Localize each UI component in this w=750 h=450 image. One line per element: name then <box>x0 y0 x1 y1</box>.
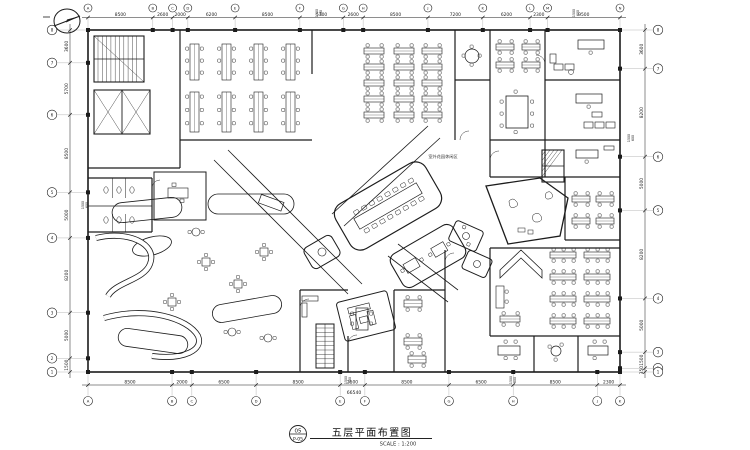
svg-text:1: 1 <box>657 370 660 375</box>
svg-text:室外花园休闲区: 室外花园休闲区 <box>428 153 457 160</box>
structural-columns <box>86 28 622 374</box>
svg-text:3600: 3600 <box>64 41 70 52</box>
svg-text:H: H <box>512 399 515 404</box>
svg-text:G: G <box>447 399 450 404</box>
svg-text:M: M <box>546 6 549 11</box>
svg-text:7: 7 <box>657 66 660 71</box>
svg-text:8500: 8500 <box>64 148 70 159</box>
svg-text:600: 600 <box>513 377 517 383</box>
svg-text:B: B <box>171 399 174 404</box>
svg-text:2000: 2000 <box>175 12 186 18</box>
svg-text:5000: 5000 <box>639 178 645 189</box>
svg-text:A: A <box>87 6 90 11</box>
svg-text:8200: 8200 <box>639 107 645 118</box>
svg-text:8: 8 <box>657 28 660 33</box>
svg-text:F: F <box>299 6 301 11</box>
svg-text:66540: 66540 <box>347 390 362 396</box>
svg-text:3: 3 <box>51 310 54 315</box>
svg-text:8500: 8500 <box>390 12 401 18</box>
svg-text:J: J <box>596 399 598 404</box>
svg-text:B: B <box>151 6 154 11</box>
svg-text:C: C <box>191 399 194 404</box>
svg-text:8500: 8500 <box>262 12 273 18</box>
floor-plan-drawing: 室外花园休闲区 <box>88 30 620 372</box>
svg-text:600: 600 <box>576 10 580 16</box>
svg-text:6: 6 <box>657 154 660 159</box>
svg-text:G: G <box>342 6 345 11</box>
svg-text:2: 2 <box>51 356 54 361</box>
svg-text:6: 6 <box>51 112 54 117</box>
svg-text:8500: 8500 <box>115 12 126 18</box>
svg-text:1500: 1500 <box>64 359 70 370</box>
svg-text:8500: 8500 <box>124 379 135 385</box>
svg-text:2000: 2000 <box>176 379 187 385</box>
svg-text:7200: 7200 <box>450 12 461 18</box>
svg-text:8: 8 <box>51 28 54 33</box>
svg-text:8500: 8500 <box>401 379 412 385</box>
svg-text:5000: 5000 <box>639 320 645 331</box>
sheet-code: P-05 <box>293 437 303 443</box>
svg-text:H: H <box>362 6 365 11</box>
svg-text:5000: 5000 <box>64 209 70 220</box>
svg-text:5700: 5700 <box>64 83 70 94</box>
sheet-number: 05 <box>295 429 302 435</box>
drawing-scale: SCALE : 1:200 <box>380 442 417 448</box>
svg-text:2300: 2300 <box>533 12 544 18</box>
svg-text:7: 7 <box>51 60 54 65</box>
svg-text:2600: 2600 <box>348 12 359 18</box>
svg-text:4: 4 <box>51 236 54 241</box>
svg-text:N: N <box>619 6 622 11</box>
svg-text:6500: 6500 <box>475 379 486 385</box>
svg-text:5000: 5000 <box>64 330 70 341</box>
svg-text:F: F <box>364 399 366 404</box>
svg-text:8200: 8200 <box>64 270 70 281</box>
svg-text:C: C <box>171 6 174 11</box>
svg-text:1500: 1500 <box>639 354 645 365</box>
svg-text:2600: 2600 <box>157 12 168 18</box>
svg-text:5: 5 <box>51 190 54 195</box>
title-block: 05 P-05 五层平面布置图 SCALE : 1:200 <box>290 426 433 448</box>
svg-text:600: 600 <box>319 10 323 16</box>
svg-text:8500: 8500 <box>293 379 304 385</box>
svg-text:600: 600 <box>348 377 352 383</box>
svg-text:5: 5 <box>657 208 660 213</box>
drawing-sheet: 8500260020006200850057002600850072006200… <box>0 0 750 450</box>
floor-plan-canvas: 8500260020006200850057002600850072006200… <box>0 0 750 450</box>
svg-text:D: D <box>186 6 189 11</box>
svg-text:600: 600 <box>631 135 635 141</box>
svg-text:8200: 8200 <box>639 249 645 260</box>
svg-text:6200: 6200 <box>206 12 217 18</box>
svg-text:6500: 6500 <box>218 379 229 385</box>
svg-text:D: D <box>255 399 258 404</box>
svg-text:8500: 8500 <box>550 379 561 385</box>
drawing-title: 五层平面布置图 <box>332 427 413 439</box>
svg-text:3600: 3600 <box>639 44 645 55</box>
svg-text:A: A <box>87 399 90 404</box>
svg-text:3: 3 <box>657 350 660 355</box>
svg-text:1: 1 <box>51 370 54 375</box>
svg-text:J: J <box>426 6 428 11</box>
svg-text:6200: 6200 <box>501 12 512 18</box>
svg-text:4: 4 <box>657 296 660 301</box>
svg-text:2300: 2300 <box>603 379 614 385</box>
